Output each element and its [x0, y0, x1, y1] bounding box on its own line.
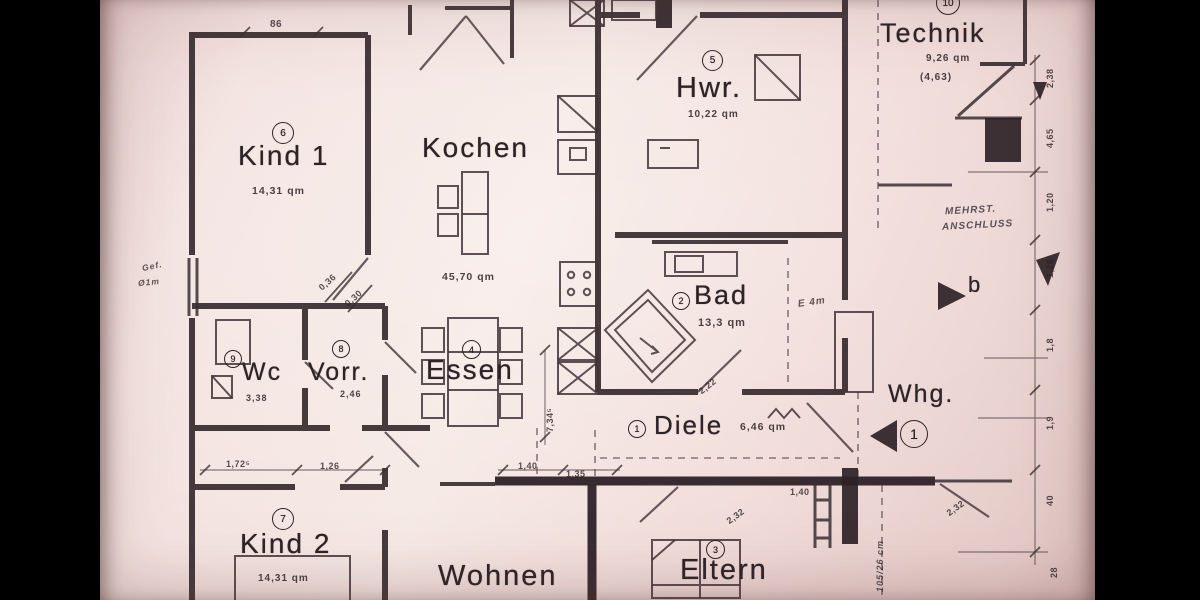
dim-essen-vertical: 7,34⁵	[546, 408, 555, 432]
scanned-floorplan: 6 5 10 2 9 8 4 1 7 3 1 Kind 1 Kochen Hwr…	[100, 0, 1095, 600]
room-number-bad: 2	[672, 292, 690, 310]
dim-kind2-b: 1,26	[320, 462, 340, 471]
dim-entry-d: 1,40	[790, 488, 810, 497]
room-area-bad: 13,3 qm	[698, 318, 746, 329]
unit-label: Whg.	[888, 382, 954, 407]
room-area-hwr: 10,22 qm	[688, 110, 739, 120]
room-label-bad: Bad	[694, 282, 748, 309]
screenshot: 6 5 10 2 9 8 4 1 7 3 1 Kind 1 Kochen Hwr…	[0, 0, 1200, 600]
dim-chain-0: 2,38	[1046, 68, 1055, 88]
dim-chain-7: 28	[1050, 567, 1059, 578]
room-label-kochen: Kochen	[422, 134, 529, 162]
room-area-kochen: 45,70 qm	[442, 272, 495, 283]
dim-chain-5: 1,9	[1046, 416, 1055, 430]
room-area-kind2: 14,31 qm	[258, 574, 309, 584]
room-area-kind1: 14,31 qm	[252, 186, 305, 197]
room-number-vorr: 8	[332, 340, 350, 358]
room-label-technik: Technik	[880, 20, 986, 47]
room-area-diele: 6,46 qm	[740, 422, 786, 433]
pillarbox-right	[1095, 0, 1200, 600]
dim-chain-6: 40	[1046, 495, 1055, 506]
dim-entry-b: 1,35	[566, 470, 586, 479]
dim-kind2-a: 1,72⁵	[226, 460, 250, 469]
unit-entry-arrow-icon	[870, 420, 897, 452]
room-label-vorr: Vorr.	[308, 360, 369, 385]
pillarbox-left	[0, 0, 100, 600]
room-number-diele: 1	[628, 420, 646, 438]
room-number-kind2: 7	[272, 508, 294, 530]
room-label-essen: Essen	[426, 356, 514, 384]
room-label-wc: Wc	[242, 360, 282, 385]
room-number-hwr: 5	[702, 50, 723, 71]
dim-chain-3: 1,26	[1046, 258, 1055, 278]
room-label-kind2: Kind 2	[240, 530, 331, 558]
room-area-vorr: 2,46	[340, 390, 362, 399]
note-shaft: 105/26 cm	[876, 540, 885, 592]
dim-chain-4: 1,8	[1046, 338, 1055, 352]
walls	[189, 0, 1025, 600]
dim-chain-2: 1,20	[1046, 192, 1055, 212]
furniture	[212, 0, 873, 600]
note-diam: Ø1m	[138, 277, 161, 288]
dim-entry-a: 1,40	[518, 462, 538, 471]
marker-b-label: b	[968, 274, 982, 296]
room-label-hwr: Hwr.	[676, 74, 742, 103]
room-label-eltern: Eltern	[680, 556, 768, 585]
room-area-technik2: (4,63)	[920, 73, 952, 83]
room-area-wc: 3,38	[246, 394, 268, 403]
room-label-diele: Diele	[654, 412, 723, 438]
dim-top: 86	[270, 20, 282, 30]
room-area-technik: 9,26 qm	[926, 54, 970, 64]
door-swings	[305, 16, 989, 522]
marker-b-triangle-icon	[938, 282, 966, 310]
room-label-kind1: Kind 1	[238, 142, 329, 170]
room-number-wc: 9	[224, 350, 242, 368]
room-label-wohnen: Wohnen	[438, 562, 558, 591]
dim-chain-1: 4,65	[1046, 128, 1055, 148]
unit-number: 1	[900, 420, 928, 448]
